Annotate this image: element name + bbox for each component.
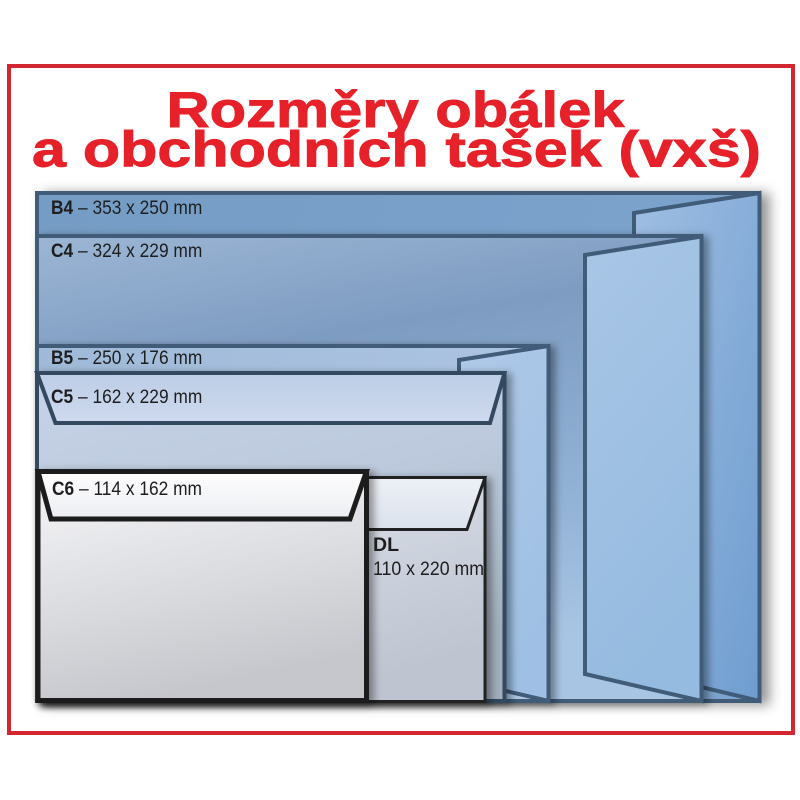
svg-text:a obchodních tašek (vxš): a obchodních tašek (vxš) <box>32 122 761 178</box>
svg-text:110 x 220 mm: 110 x 220 mm <box>373 557 484 579</box>
svg-text:B5 – 250 x 176 mm: B5 – 250 x 176 mm <box>51 346 202 368</box>
svg-text:C5 – 162 x 229 mm: C5 – 162 x 229 mm <box>51 385 202 407</box>
svg-text:DL: DL <box>373 534 399 556</box>
svg-text:B4 – 353 x 250 mm: B4 – 353 x 250 mm <box>51 196 202 218</box>
svg-text:C6 – 114 x 162 mm: C6 – 114 x 162 mm <box>52 477 202 499</box>
svg-text:C4 – 324 x 229 mm: C4 – 324 x 229 mm <box>51 239 202 261</box>
